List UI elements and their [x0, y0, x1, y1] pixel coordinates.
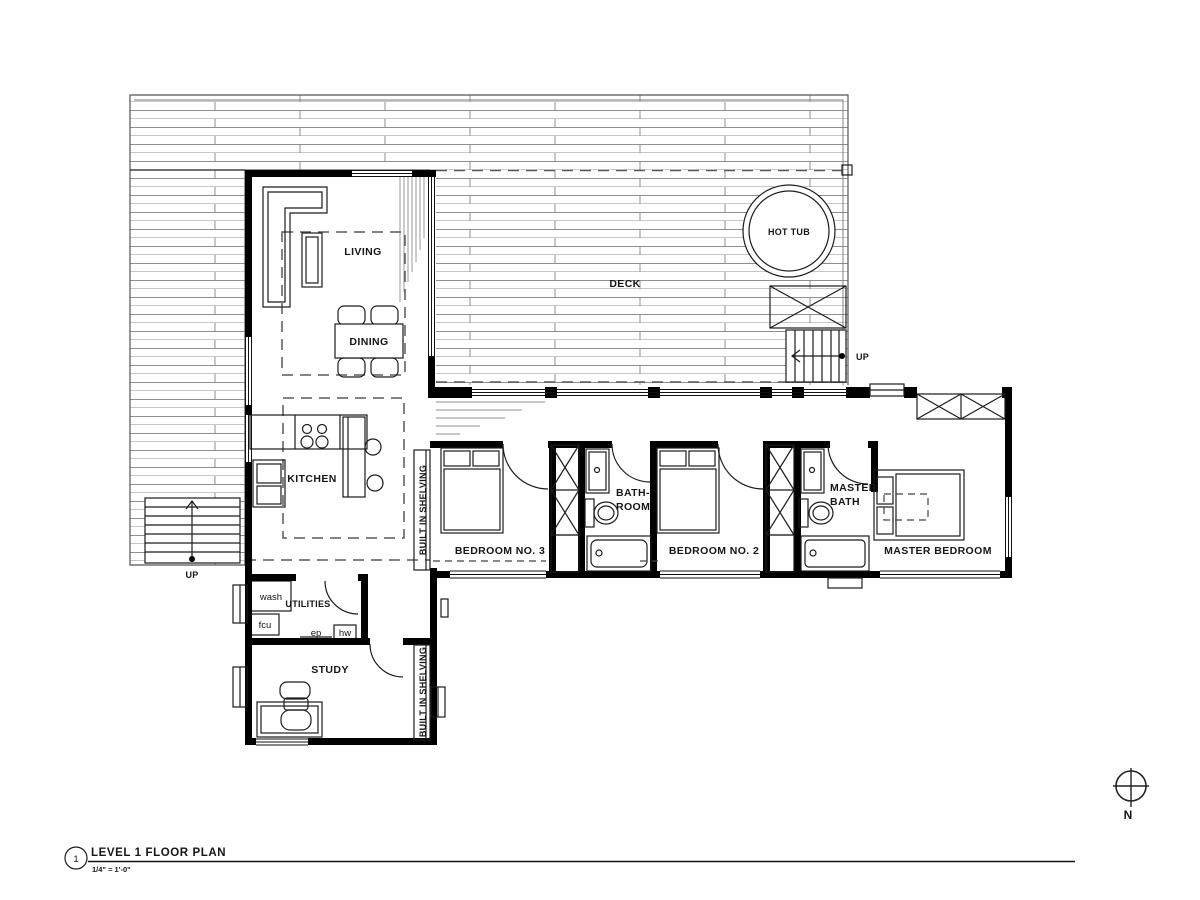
stair-start-dot: [189, 556, 195, 562]
drawing-scale: 1/4" = 1'-0": [92, 865, 131, 874]
south-step: [828, 578, 862, 588]
dining-label: DINING: [349, 336, 388, 348]
drawing-title: LEVEL 1 FLOOR PLAN: [91, 847, 226, 859]
floor-plan-sheet: DECK HOT TUB UP UP: [0, 0, 1200, 900]
living-label: LIVING: [344, 246, 381, 258]
wing-north-pier: [430, 387, 472, 398]
mbath-label-line2: BATH: [830, 496, 860, 508]
deck-label: DECK: [609, 278, 640, 290]
north-label: N: [1124, 808, 1133, 822]
kitchen-label: KITCHEN: [287, 473, 336, 485]
study-label: STUDY: [311, 664, 349, 676]
shelving-hall-label: BUILT IN SHELVING: [418, 465, 428, 555]
deck-up-label: UP: [856, 352, 869, 362]
bedroom2-label: BEDROOM NO. 2: [669, 545, 759, 557]
master-bedroom-label: MASTER BEDROOM: [884, 545, 992, 557]
hw-label: hw: [339, 628, 351, 639]
fcu-label: fcu: [259, 620, 272, 631]
stairs-interior: UP: [145, 498, 240, 580]
washer-label: wash: [259, 592, 282, 603]
bathroom-label-line1: BATH-: [616, 487, 650, 499]
detail-number: 1: [73, 854, 78, 865]
bedroom3-label: BEDROOM NO. 3: [455, 545, 545, 557]
up-label: UP: [185, 570, 198, 580]
window-symbol-study-west: [233, 667, 247, 707]
hot-tub: HOT TUB: [743, 185, 835, 277]
window-symbol-utilities: [233, 585, 247, 623]
mbath-label-line1: MASTER: [830, 482, 877, 494]
title-block: 1 LEVEL 1 FLOOR PLAN 1/4" = 1'-0": [65, 847, 1075, 874]
living-wing-floor: [245, 170, 436, 745]
shelving-study-label: BUILT IN SHELVING: [418, 647, 428, 737]
wing-north-pier: [904, 387, 917, 398]
entry-door-hardware: [441, 599, 448, 617]
floor-plan-drawing: DECK HOT TUB UP UP: [0, 0, 1200, 900]
bathroom-label-line2: ROOM: [616, 501, 650, 513]
stairs-deck: UP: [786, 330, 869, 382]
utilities-label: UTILITIES: [285, 599, 330, 609]
hot-tub-label: HOT TUB: [768, 227, 810, 237]
north-arrow: N: [1113, 768, 1149, 822]
deck-stair-start-dot: [839, 353, 845, 359]
wing-north-pier: [846, 387, 870, 398]
study-desk: [257, 702, 322, 737]
